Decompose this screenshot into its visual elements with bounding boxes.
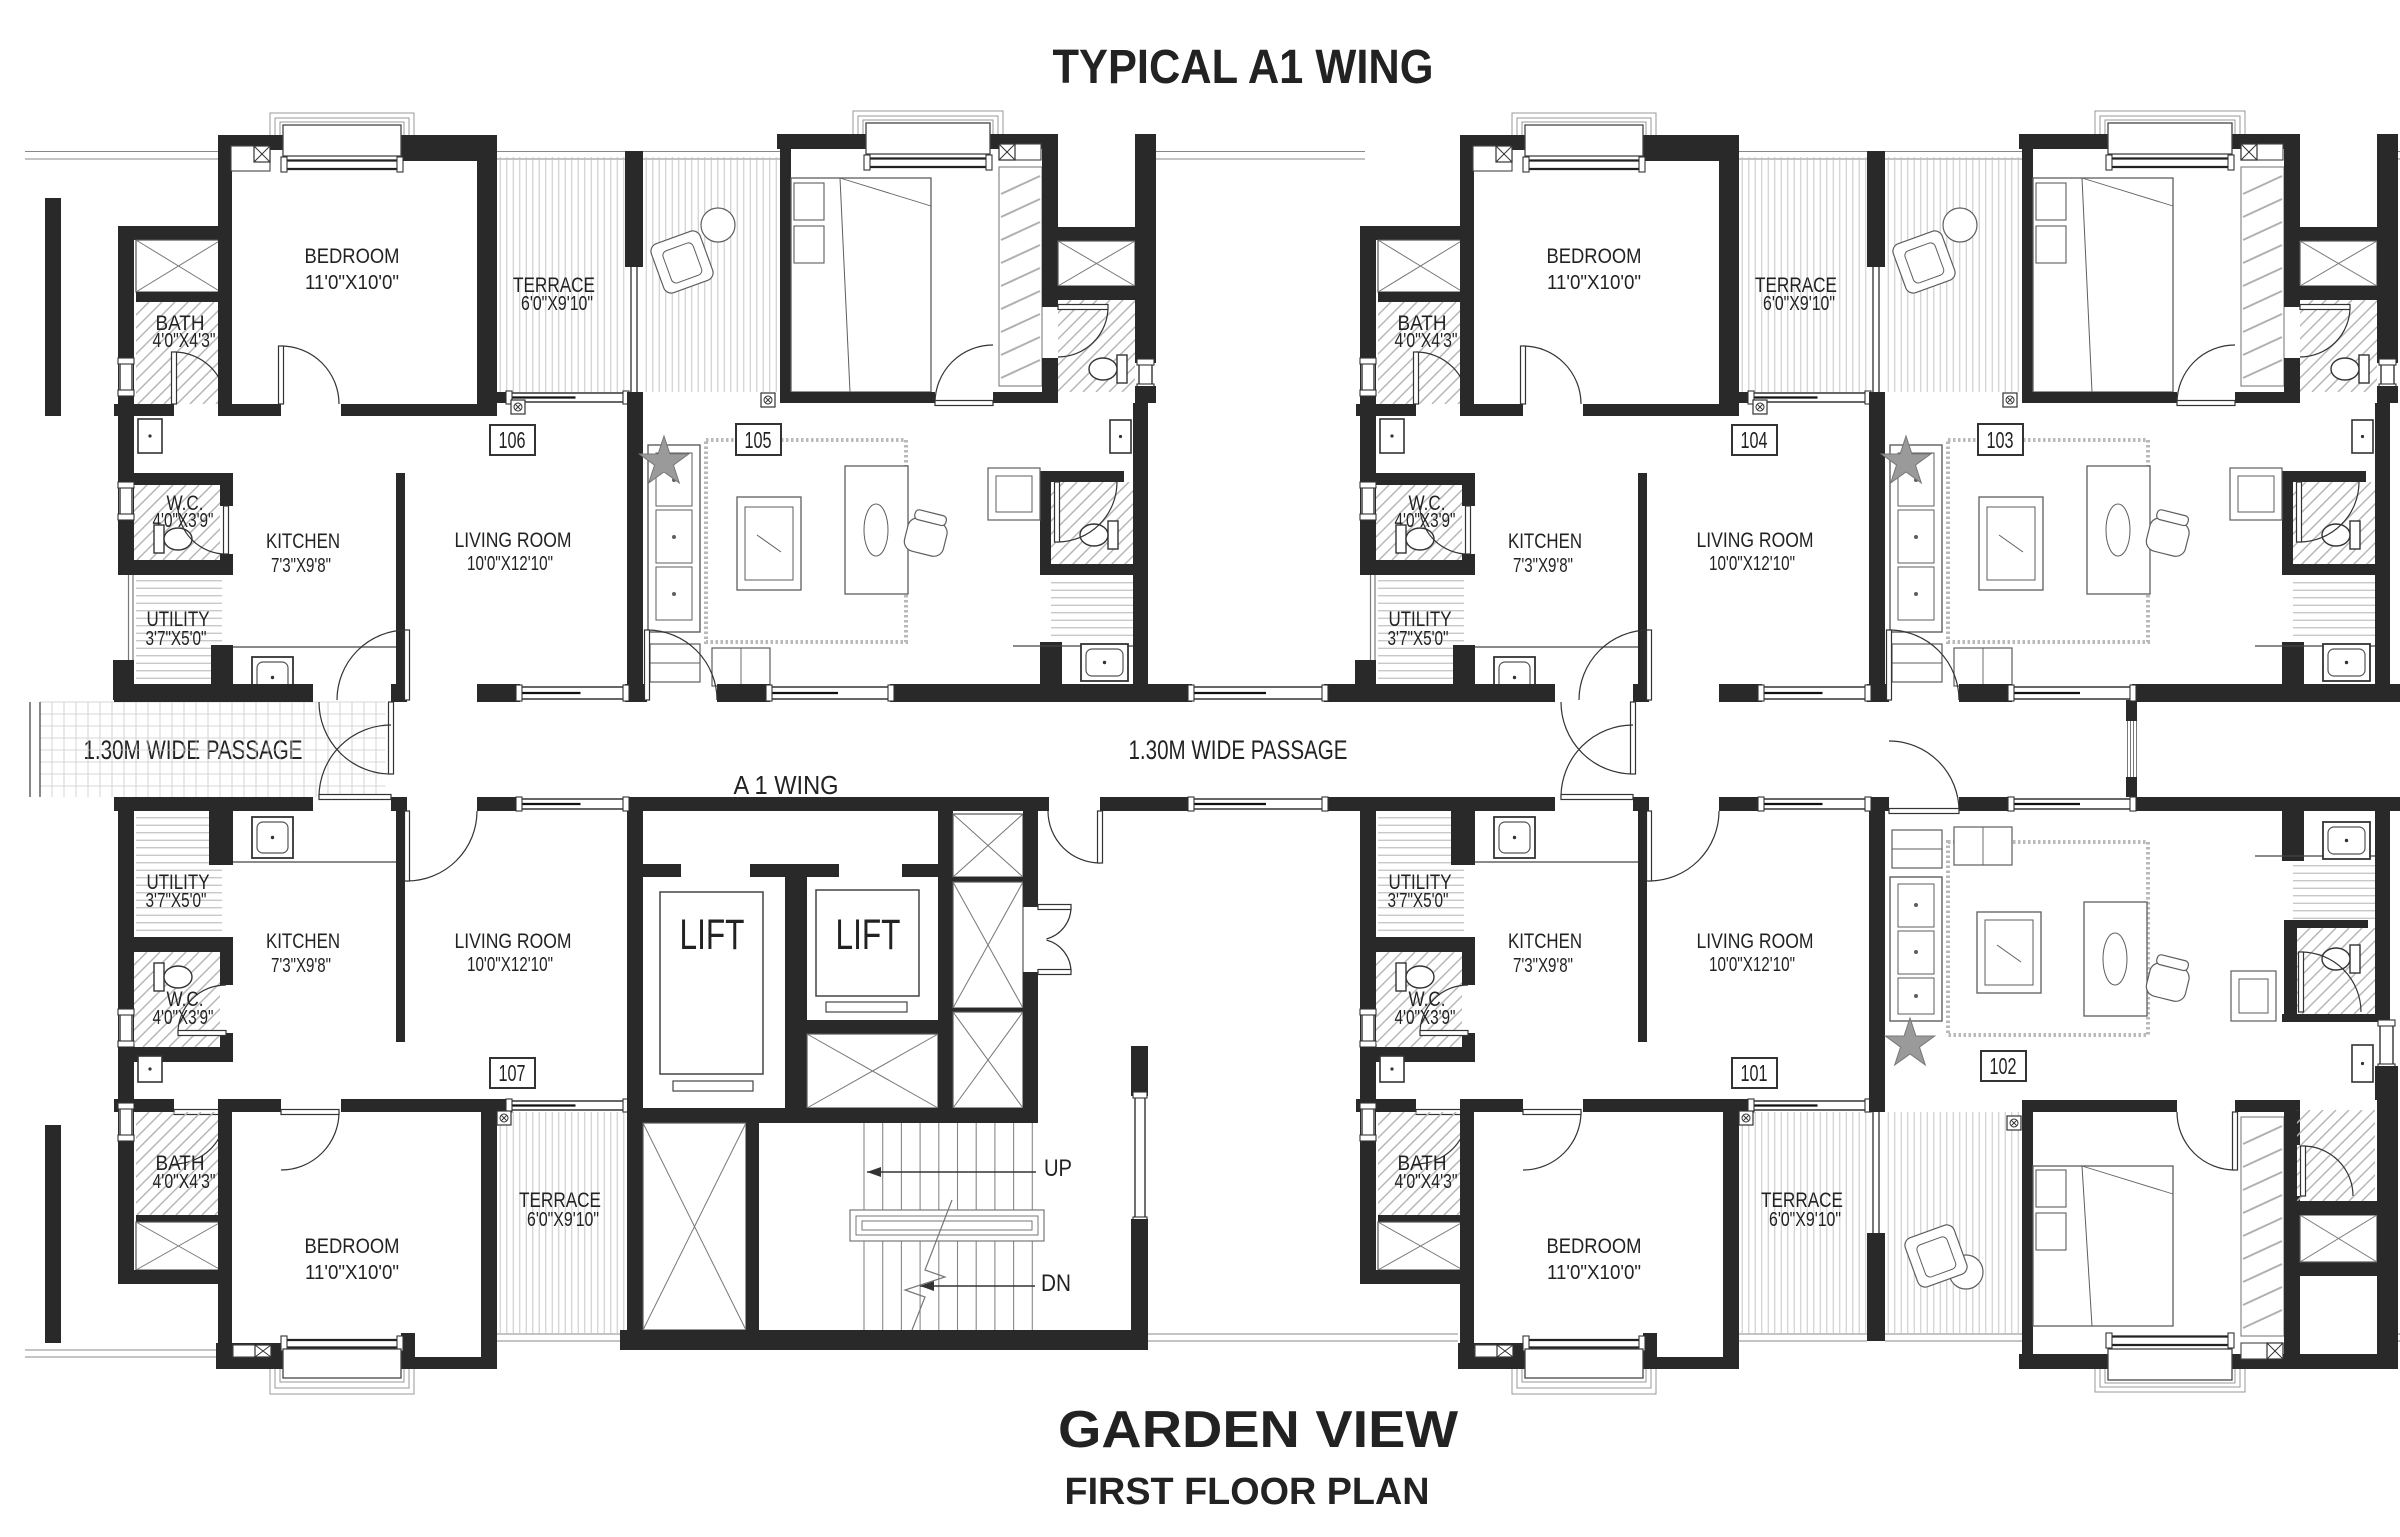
svg-text:KITCHEN: KITCHEN <box>266 530 340 553</box>
svg-text:6'0"X9'10": 6'0"X9'10" <box>521 293 593 315</box>
svg-text:107: 107 <box>499 1060 526 1086</box>
svg-text:11'0"X10'0": 11'0"X10'0" <box>1547 272 1641 294</box>
svg-text:3'7"X5'0": 3'7"X5'0" <box>146 628 207 650</box>
svg-text:LIVING ROOM: LIVING ROOM <box>455 529 572 552</box>
svg-text:3'7"X5'0": 3'7"X5'0" <box>1388 890 1449 912</box>
svg-text:106: 106 <box>499 427 526 453</box>
svg-text:7'3"X9'8": 7'3"X9'8" <box>271 555 331 577</box>
svg-text:104: 104 <box>1741 427 1768 453</box>
svg-text:7'3"X9'8": 7'3"X9'8" <box>1513 555 1573 577</box>
svg-text:105: 105 <box>745 427 772 453</box>
svg-text:KITCHEN: KITCHEN <box>1508 930 1582 953</box>
svg-text:UP: UP <box>1044 1155 1072 1182</box>
svg-text:3'7"X5'0": 3'7"X5'0" <box>1388 628 1449 650</box>
svg-text:4'0"X4'3": 4'0"X4'3" <box>1395 330 1458 352</box>
svg-text:11'0"X10'0": 11'0"X10'0" <box>305 272 399 294</box>
svg-text:KITCHEN: KITCHEN <box>266 930 340 953</box>
svg-text:4'0"X4'3": 4'0"X4'3" <box>153 330 216 352</box>
svg-text:7'3"X9'8": 7'3"X9'8" <box>271 955 331 977</box>
svg-text:4'0"X4'3": 4'0"X4'3" <box>153 1171 216 1193</box>
svg-text:7'3"X9'8": 7'3"X9'8" <box>1513 955 1573 977</box>
svg-text:11'0"X10'0": 11'0"X10'0" <box>305 1262 399 1284</box>
svg-text:BEDROOM: BEDROOM <box>1547 245 1642 268</box>
svg-text:10'0"X12'10": 10'0"X12'10" <box>1709 553 1795 575</box>
svg-text:102: 102 <box>1990 1053 2017 1079</box>
svg-text:6'0"X9'10": 6'0"X9'10" <box>1769 1209 1841 1231</box>
svg-text:A 1 WING: A 1 WING <box>734 770 839 800</box>
svg-text:LIVING ROOM: LIVING ROOM <box>455 930 572 953</box>
svg-text:6'0"X9'10": 6'0"X9'10" <box>527 1209 599 1231</box>
svg-text:101: 101 <box>1741 1060 1768 1086</box>
svg-text:LIFT: LIFT <box>836 911 901 959</box>
svg-text:10'0"X12'10": 10'0"X12'10" <box>467 553 553 575</box>
svg-text:3'7"X5'0": 3'7"X5'0" <box>146 890 207 912</box>
svg-text:6'0"X9'10": 6'0"X9'10" <box>1763 293 1835 315</box>
svg-text:LIFT: LIFT <box>680 911 745 959</box>
svg-text:BEDROOM: BEDROOM <box>1547 1235 1642 1258</box>
svg-text:4'0"X4'3": 4'0"X4'3" <box>1395 1171 1458 1193</box>
svg-text:FIRST FLOOR PLAN: FIRST FLOOR PLAN <box>1065 1471 1430 1513</box>
svg-text:10'0"X12'10": 10'0"X12'10" <box>1709 954 1795 976</box>
svg-text:LIVING ROOM: LIVING ROOM <box>1697 930 1814 953</box>
svg-text:103: 103 <box>1987 427 2014 453</box>
svg-text:LIVING ROOM: LIVING ROOM <box>1697 529 1814 552</box>
svg-text:BEDROOM: BEDROOM <box>305 1235 400 1258</box>
svg-text:GARDEN VIEW: GARDEN VIEW <box>1058 1401 1459 1459</box>
svg-text:TYPICAL A1 WING: TYPICAL A1 WING <box>1053 41 1434 94</box>
svg-text:KITCHEN: KITCHEN <box>1508 530 1582 553</box>
svg-text:10'0"X12'10": 10'0"X12'10" <box>467 954 553 976</box>
svg-text:1.30M WIDE PASSAGE: 1.30M WIDE PASSAGE <box>1129 735 1348 765</box>
svg-text:11'0"X10'0": 11'0"X10'0" <box>1547 1262 1641 1284</box>
svg-text:BEDROOM: BEDROOM <box>305 245 400 268</box>
svg-text:DN: DN <box>1041 1270 1071 1297</box>
